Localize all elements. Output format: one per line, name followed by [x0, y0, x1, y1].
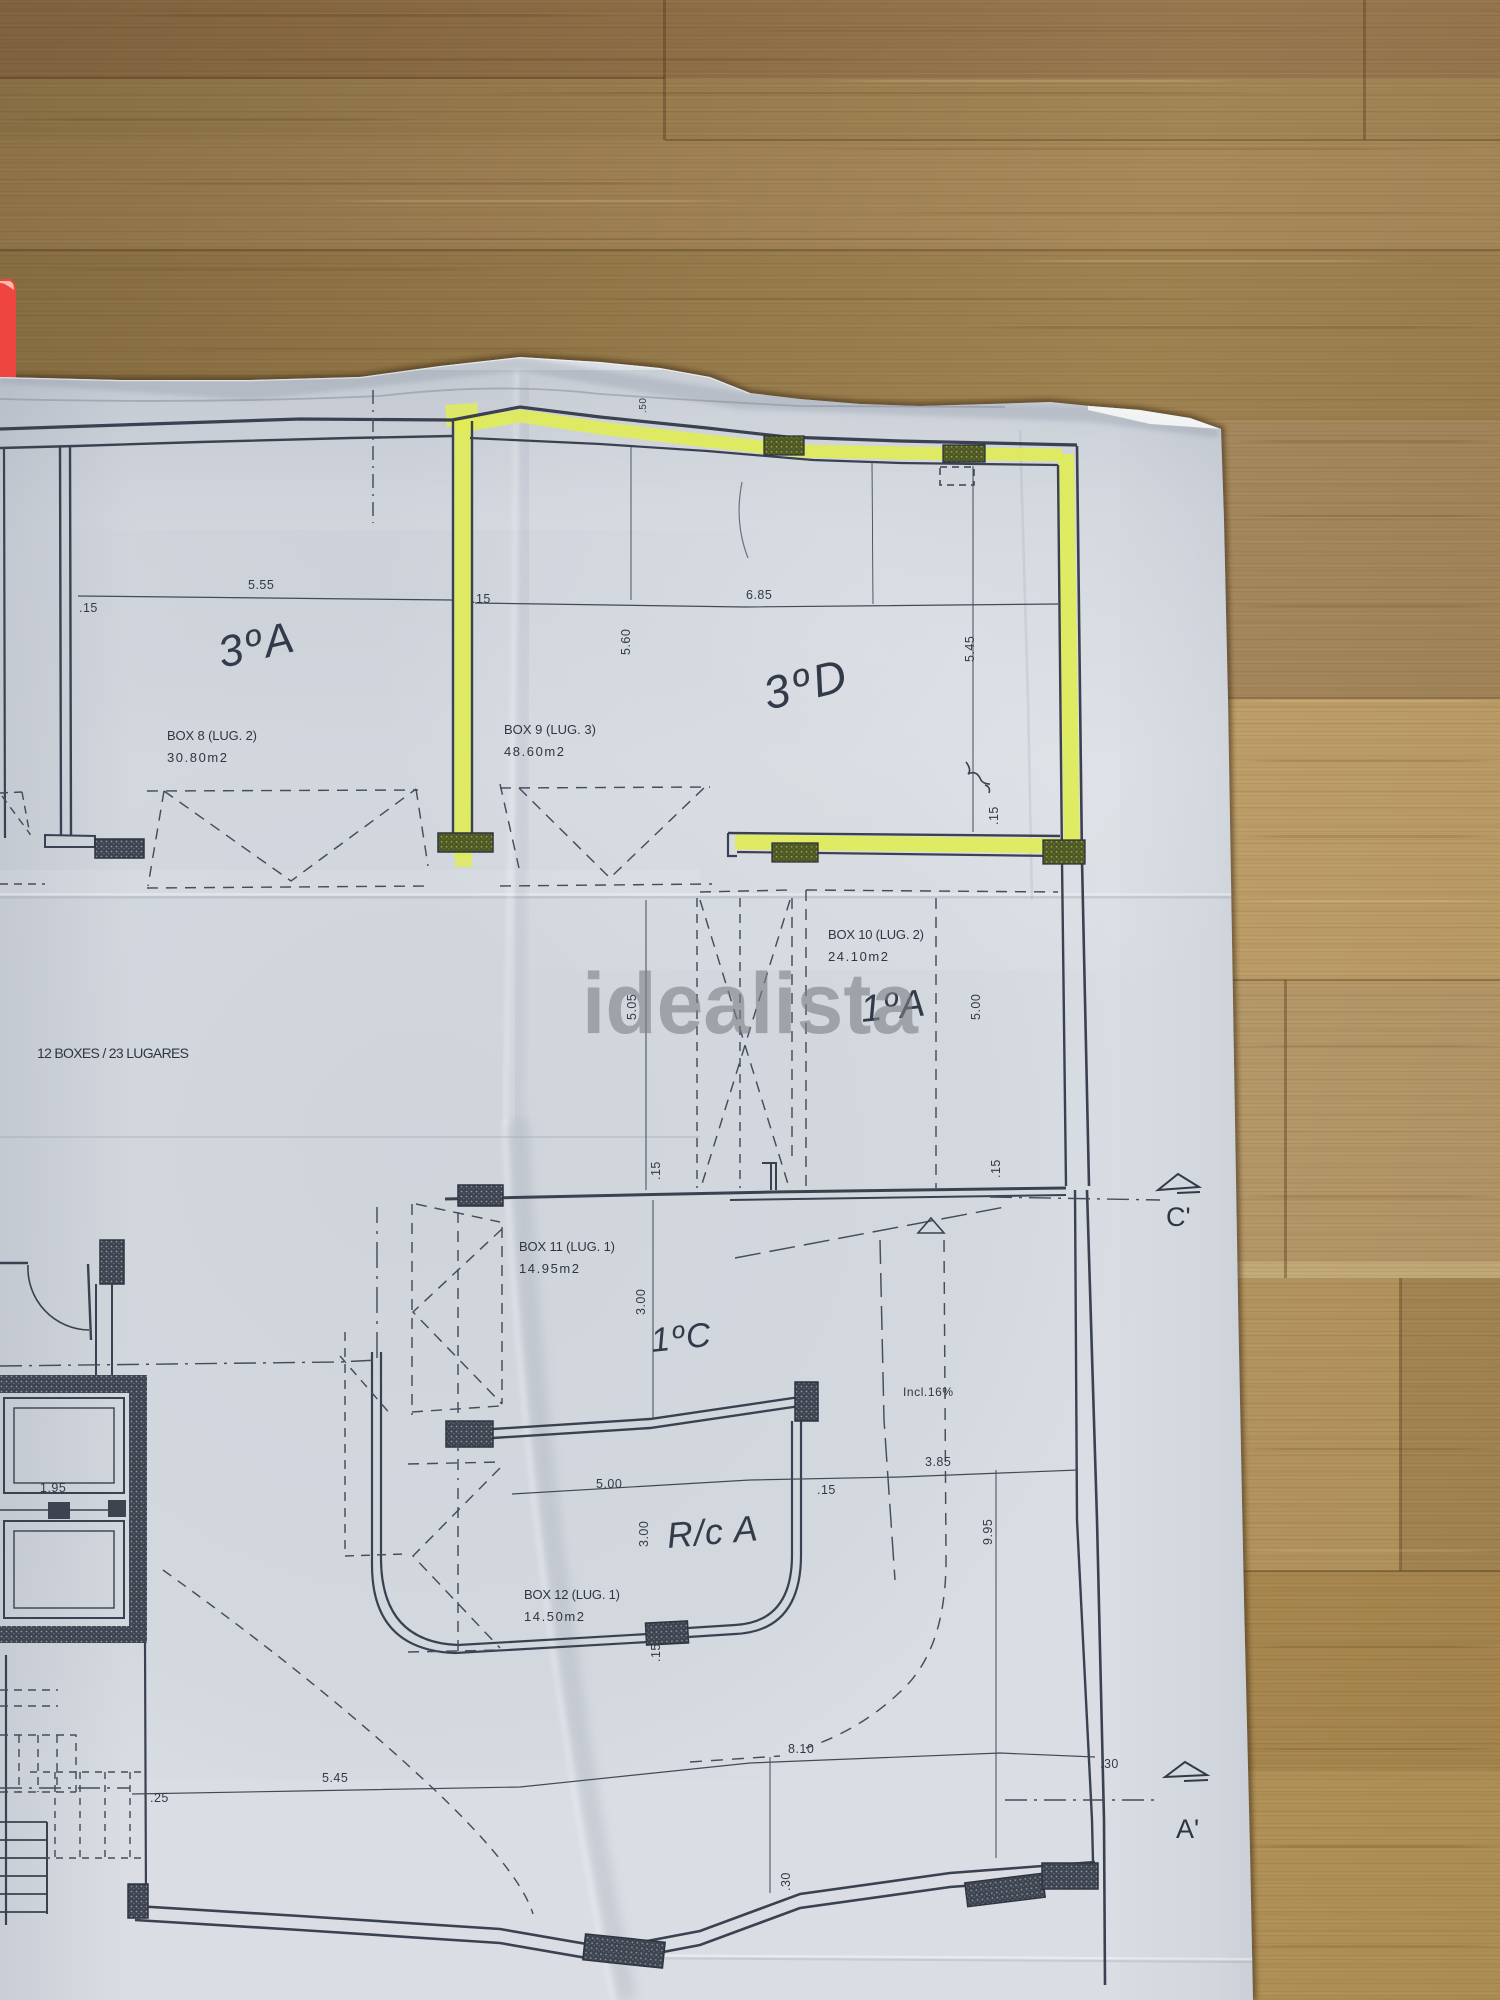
- svg-text:5.55: 5.55: [248, 578, 274, 592]
- svg-text:R/c A: R/c A: [665, 1507, 760, 1556]
- svg-text:5.45: 5.45: [322, 1771, 348, 1785]
- svg-text:Incl.16%: Incl.16%: [903, 1385, 953, 1399]
- svg-text:5.00: 5.00: [596, 1477, 622, 1491]
- svg-text:1.95: 1.95: [40, 1481, 66, 1495]
- svg-text:8.10: 8.10: [788, 1742, 814, 1756]
- svg-text:48.60m2: 48.60m2: [504, 744, 564, 759]
- svg-text:1ºC: 1ºC: [649, 1316, 715, 1360]
- svg-text:idealista: idealista: [582, 956, 919, 1052]
- svg-text:.50: .50: [638, 398, 649, 413]
- svg-text:BOX 10 (LUG. 2): BOX 10 (LUG. 2): [828, 927, 924, 942]
- svg-text:.15: .15: [649, 1643, 663, 1662]
- svg-text:3.00: 3.00: [637, 1521, 651, 1547]
- svg-text:14.50m2: 14.50m2: [524, 1609, 584, 1624]
- svg-text:5.00: 5.00: [969, 994, 983, 1020]
- svg-text:6.85: 6.85: [746, 588, 772, 602]
- svg-text:C': C': [1166, 1202, 1191, 1232]
- svg-text:.30: .30: [1100, 1757, 1119, 1771]
- svg-text:.30: .30: [779, 1872, 793, 1891]
- svg-text:.15: .15: [79, 601, 98, 615]
- svg-text:30.80m2: 30.80m2: [167, 750, 227, 765]
- svg-text:A': A': [1176, 1814, 1199, 1844]
- svg-text:BOX 12 (LUG. 1): BOX 12 (LUG. 1): [524, 1587, 620, 1602]
- svg-text:BOX 9 (LUG. 3): BOX 9 (LUG. 3): [504, 722, 596, 737]
- svg-text:9.95: 9.95: [981, 1519, 995, 1545]
- svg-text:5.60: 5.60: [619, 629, 633, 655]
- svg-text:.25: .25: [150, 1791, 169, 1805]
- svg-text:.15: .15: [987, 806, 1001, 825]
- svg-text:.15: .15: [817, 1483, 836, 1497]
- svg-text:14.95m2: 14.95m2: [519, 1261, 579, 1276]
- svg-text:.15: .15: [649, 1161, 663, 1180]
- svg-text:BOX 11 (LUG. 1): BOX 11 (LUG. 1): [519, 1239, 615, 1254]
- svg-text:3.85: 3.85: [925, 1455, 951, 1469]
- svg-text:3.00: 3.00: [634, 1289, 648, 1315]
- svg-text:5.45: 5.45: [963, 636, 977, 662]
- svg-text:.15: .15: [472, 592, 491, 606]
- svg-text:BOX 8 (LUG. 2): BOX 8 (LUG. 2): [167, 728, 257, 743]
- svg-text:.15: .15: [989, 1159, 1003, 1178]
- svg-text:12 BOXES / 23 LUGARES: 12 BOXES / 23 LUGARES: [37, 1045, 189, 1061]
